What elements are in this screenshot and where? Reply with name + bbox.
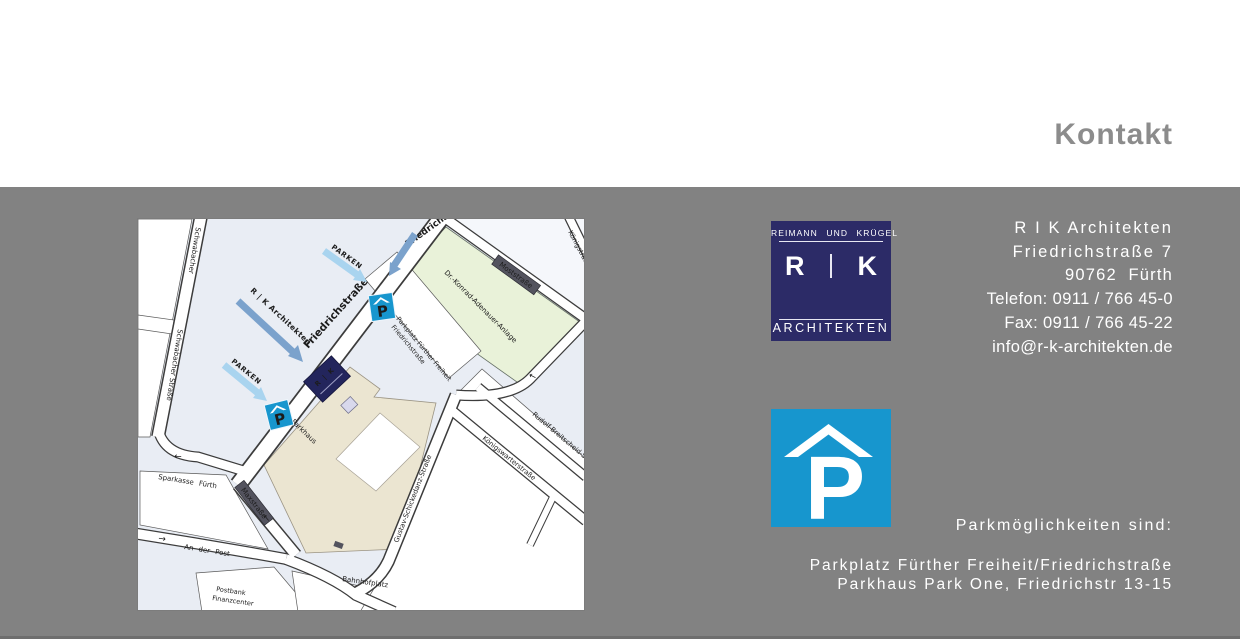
page-title: Kontakt xyxy=(1054,118,1173,152)
contact-phone: Telefon: 0911 / 766 45-0 xyxy=(987,288,1173,312)
one-way-arrow-icon: ← xyxy=(174,452,183,463)
logo-vertical-bar xyxy=(830,254,832,278)
parking-option: Parkplatz Fürther Freiheit/Friedrichstra… xyxy=(810,556,1173,575)
contact-fax: Fax: 0911 / 766 45-22 xyxy=(987,312,1173,336)
location-map: Schwabacher Schwabacher Straße Friedrich… xyxy=(137,218,585,611)
parking-options: Parkplatz Fürther Freiheit/Friedrichstra… xyxy=(810,556,1173,594)
logo-firm-line: REIMANN UND KRÜGEL xyxy=(771,228,891,238)
contact-block: R I K Architekten Friedrichstraße 7 9076… xyxy=(987,217,1173,359)
contact-street: Friedrichstraße 7 xyxy=(987,241,1173,265)
logo-divider-bottom xyxy=(779,319,883,320)
contact-name: R I K Architekten xyxy=(987,217,1173,241)
parking-tile-letter: P xyxy=(805,439,865,527)
logo-word-mark: ARCHITEKTEN xyxy=(771,321,891,335)
map-parkplatz-p-icon: P xyxy=(368,292,395,322)
contact-email-link[interactable]: info@r-k-architekten.de xyxy=(992,338,1173,356)
map-svg: Schwabacher Schwabacher Straße Friedrich… xyxy=(138,219,585,611)
logo-divider-top xyxy=(779,241,883,242)
parking-tile-icon: P xyxy=(771,409,891,527)
rk-logo: REIMANN UND KRÜGEL R K ARCHITEKTEN xyxy=(771,221,891,341)
parking-heading: Parkmöglichkeiten sind: xyxy=(956,517,1173,535)
logo-initial-r: R xyxy=(785,251,805,282)
logo-monogram: R K xyxy=(785,249,877,283)
logo-initial-k: K xyxy=(858,251,878,282)
contact-city: 90762 Fürth xyxy=(987,264,1173,288)
parking-option: Parkhaus Park One, Friedrichstr 13-15 xyxy=(810,575,1173,594)
